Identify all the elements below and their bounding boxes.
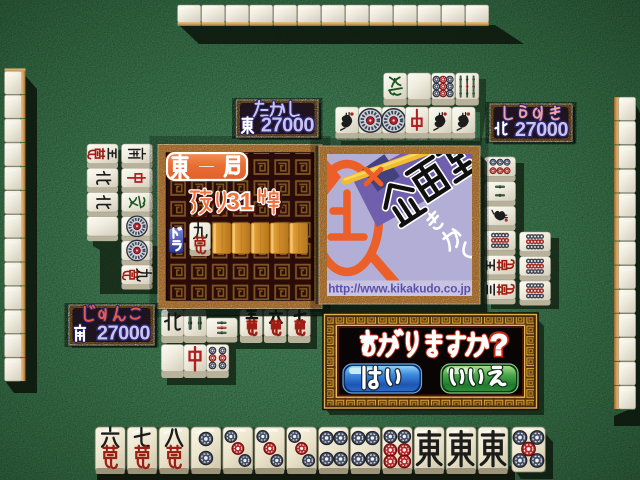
- svg-text:31: 31: [226, 188, 253, 215]
- svg-text:http://www.kikakudo.co.jp: http://www.kikakudo.co.jp: [328, 282, 471, 296]
- svg-text:27000: 27000: [261, 115, 314, 137]
- svg-text:?: ?: [490, 329, 508, 362]
- svg-text:27000: 27000: [97, 323, 150, 345]
- svg-text:27000: 27000: [515, 119, 568, 141]
